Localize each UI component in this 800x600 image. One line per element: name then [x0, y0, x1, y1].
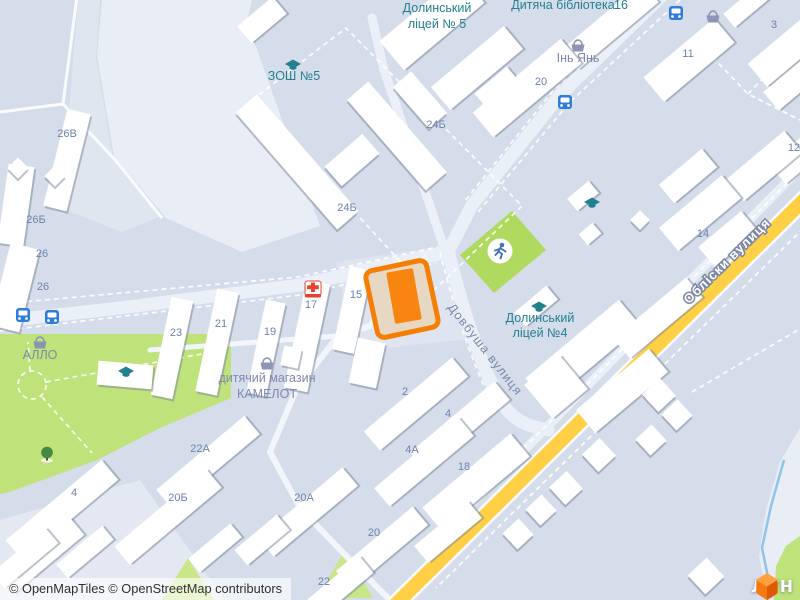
poi-label-lyceum4: ліцей №4: [513, 326, 568, 340]
housenumber-label: 18: [458, 461, 470, 473]
housenumber-label: 15: [350, 289, 362, 301]
housenumber-label: 2: [402, 386, 408, 398]
housenumber-label: 21: [215, 318, 227, 330]
poi-label-school5: ЗОШ №5: [268, 69, 320, 83]
poi-label-lyceum4: Долинський: [506, 311, 575, 325]
housenumber-label: 17: [305, 299, 317, 311]
bus-stop-icon[interactable]: [558, 95, 572, 109]
poi-label-lyceum5: Долинський: [403, 1, 472, 15]
highlighted-building[interactable]: [365, 259, 440, 338]
map-svg[interactable]: Довбуша вулиця Обліски вулиця Долинський…: [0, 0, 800, 600]
bus-stop-icon[interactable]: [669, 6, 683, 20]
map-viewport[interactable]: Довбуша вулиця Обліски вулиця Долинський…: [0, 0, 800, 600]
housenumber-label: 20: [368, 527, 380, 539]
bus-stop-icon[interactable]: [45, 310, 59, 324]
housenumber-label: 4: [445, 408, 451, 420]
housenumber-label: 20: [535, 76, 547, 88]
housenumber-label: 26: [37, 281, 49, 293]
lun-logo[interactable]: лун: [752, 572, 794, 598]
poi-label-library: Дитяча бібліотека: [511, 0, 614, 12]
housenumber-label: 19: [264, 326, 276, 338]
poi-label-yin-yang: Інь Янь: [557, 51, 600, 65]
pharmacy-icon[interactable]: [305, 281, 321, 298]
bus-stop-icon[interactable]: [16, 308, 30, 322]
housenumber-label: 16: [614, 0, 628, 12]
tree-icon: [41, 447, 53, 463]
housenumber-label: 12: [788, 142, 800, 154]
poi-label-lyceum5: ліцей № 5: [408, 17, 466, 31]
housenumber-label: 26: [36, 248, 48, 260]
poi-label-kamelot: КАМЕЛОТ: [237, 387, 297, 401]
poi-label-allo: АЛЛО: [23, 348, 58, 362]
housenumber-label: 22: [318, 576, 330, 588]
housenumber-label: 22А: [190, 443, 210, 455]
housenumber-label: 20А: [294, 492, 314, 504]
housenumber-label: 4А: [405, 444, 419, 456]
housenumber-label: 11: [682, 48, 693, 60]
housenumber-label: 26В: [57, 128, 77, 140]
lun-cube-icon: [752, 572, 779, 600]
housenumber-label: 24Б: [426, 119, 445, 131]
housenumber-label: 4: [71, 487, 77, 499]
sports-runner-icon: [488, 239, 513, 264]
map-attribution[interactable]: © OpenMapTiles © OpenStreetMap contribut…: [0, 578, 291, 600]
housenumber-label: 26Б: [26, 214, 45, 226]
housenumber-label: 24Б: [337, 202, 356, 214]
housenumber-label: 14: [697, 228, 709, 240]
housenumber-label: 3: [771, 19, 777, 31]
poi-label-kamelot: дитячий магазин: [219, 371, 316, 385]
housenumber-label: 23: [170, 327, 182, 339]
housenumber-label: 20Б: [168, 492, 187, 504]
